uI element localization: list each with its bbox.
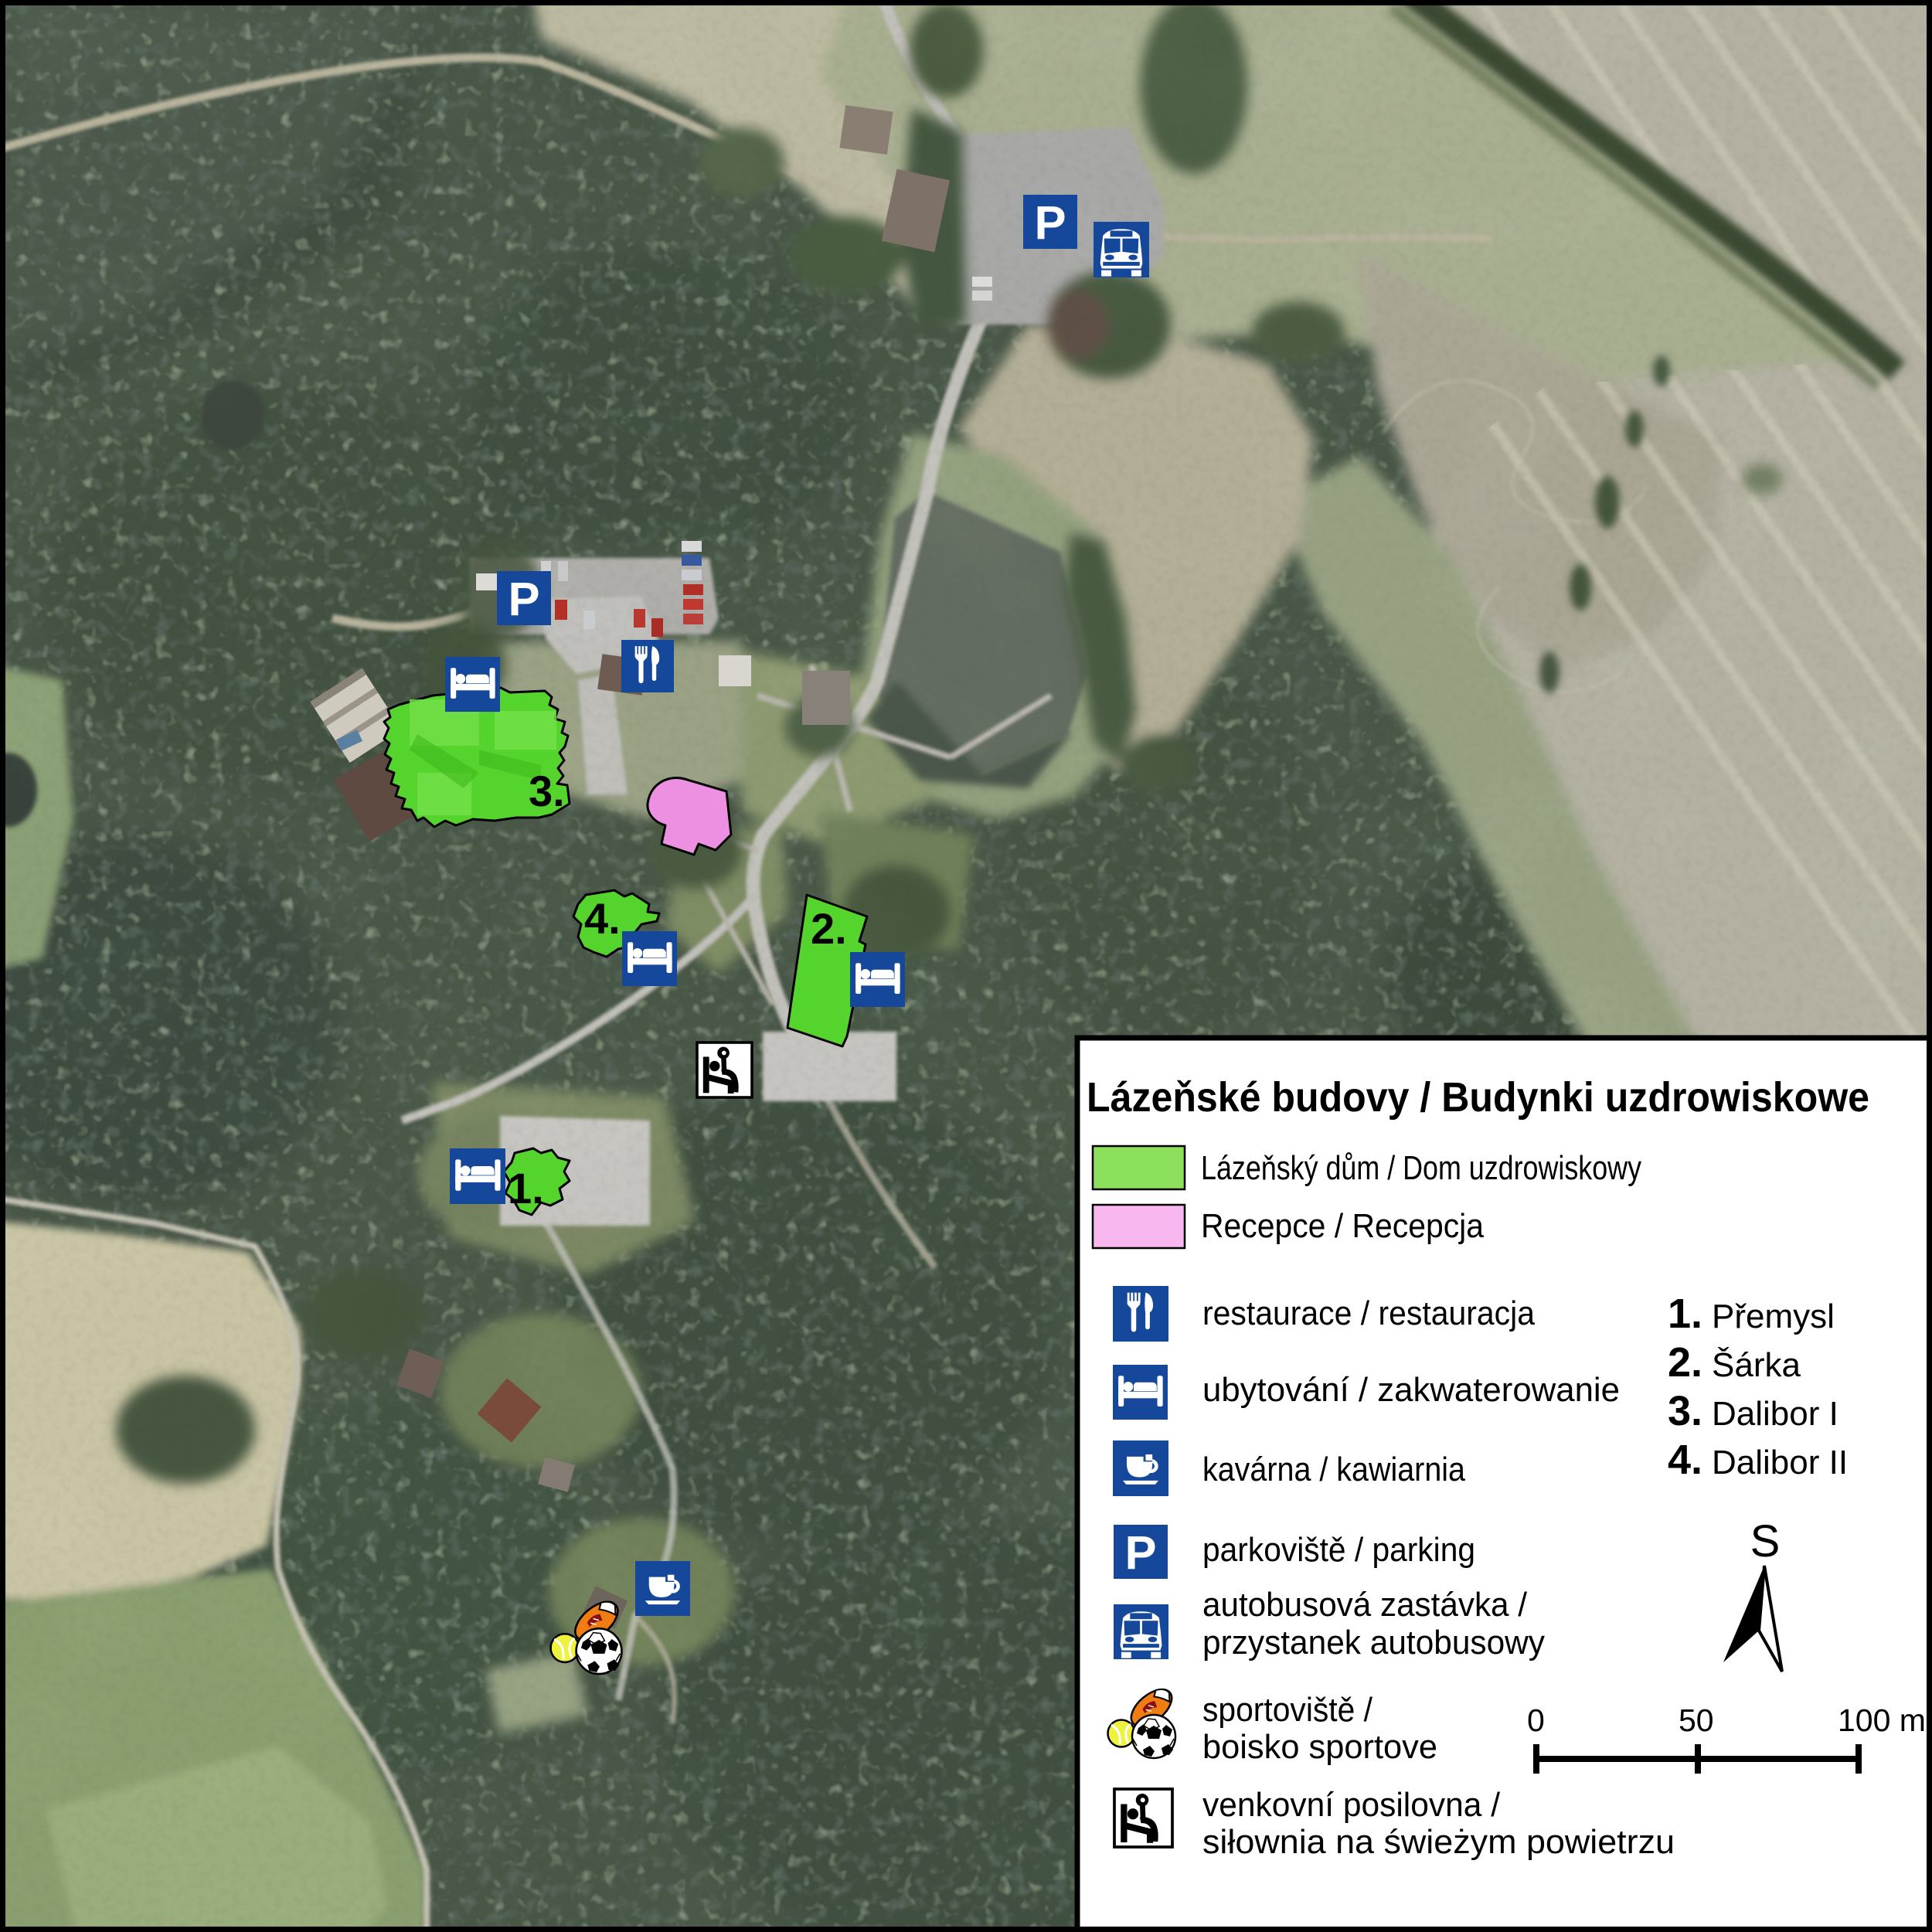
svg-text:Lázeňský dům / Dom uzdrowiskow: Lázeňský dům / Dom uzdrowiskowy xyxy=(1201,1149,1641,1187)
svg-text:S: S xyxy=(1750,1516,1781,1566)
svg-text:Dalibor II: Dalibor II xyxy=(1712,1444,1848,1481)
svg-text:2.: 2. xyxy=(1668,1339,1702,1386)
svg-text:parkoviště / parking: parkoviště / parking xyxy=(1202,1531,1475,1569)
svg-text:4.: 4. xyxy=(1668,1437,1702,1483)
svg-text:0: 0 xyxy=(1527,1702,1545,1738)
svg-text:1.: 1. xyxy=(1668,1291,1702,1337)
svg-text:1.: 1. xyxy=(508,1164,544,1213)
svg-text:sportoviště /: sportoviště / xyxy=(1202,1691,1373,1729)
svg-text:boisko sportove: boisko sportove xyxy=(1202,1728,1437,1766)
svg-text:Recepce / Recepcja: Recepce / Recepcja xyxy=(1201,1207,1484,1245)
svg-text:3.: 3. xyxy=(529,767,565,815)
svg-text:venkovní posilovna /: venkovní posilovna / xyxy=(1202,1786,1501,1824)
svg-text:Přemysl: Přemysl xyxy=(1712,1298,1835,1335)
svg-text:50: 50 xyxy=(1679,1702,1714,1738)
svg-text:kavárna / kawiarnia: kavárna / kawiarnia xyxy=(1202,1451,1465,1488)
svg-text:3.: 3. xyxy=(1668,1388,1702,1434)
svg-text:100 m: 100 m xyxy=(1838,1702,1926,1738)
svg-text:siłownia na świeżym powietrzu: siłownia na świeżym powietrzu xyxy=(1202,1823,1675,1861)
svg-text:4.: 4. xyxy=(584,894,621,943)
svg-text:przystanek autobusowy: przystanek autobusowy xyxy=(1202,1624,1545,1662)
svg-text:autobusová zastávka /: autobusová zastávka / xyxy=(1202,1586,1528,1624)
svg-text:restaurace / restauracja: restaurace / restauracja xyxy=(1202,1294,1535,1332)
svg-text:ubytování / zakwaterowanie: ubytování / zakwaterowanie xyxy=(1202,1371,1620,1409)
svg-text:2.: 2. xyxy=(811,904,847,953)
svg-text:Dalibor I: Dalibor I xyxy=(1712,1395,1838,1433)
svg-text:Lázeňské budovy / Budynki uzdr: Lázeňské budovy / Budynki uzdrowiskowe xyxy=(1087,1074,1869,1121)
svg-text:Šárka: Šárka xyxy=(1712,1345,1801,1384)
